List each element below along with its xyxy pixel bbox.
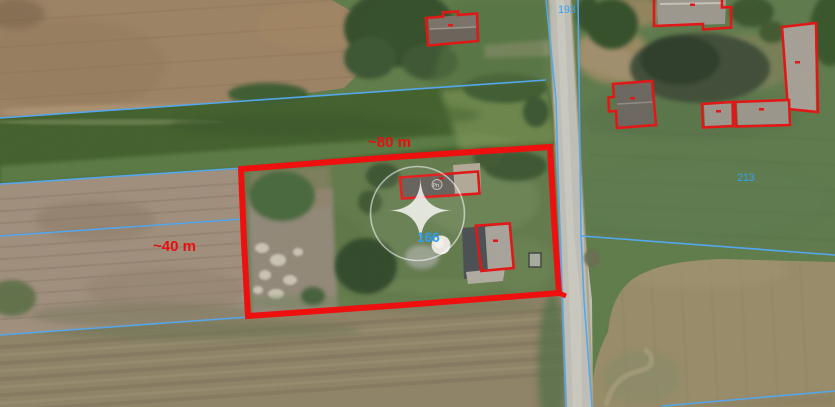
svg-text:Pn: Pn [433,183,440,189]
svg-text:166: 166 [417,229,440,245]
svg-text:~80 m: ~80 m [368,134,411,151]
svg-text:213: 213 [737,172,755,184]
svg-text:193: 193 [558,4,576,16]
svg-text:~40 m: ~40 m [153,238,196,255]
